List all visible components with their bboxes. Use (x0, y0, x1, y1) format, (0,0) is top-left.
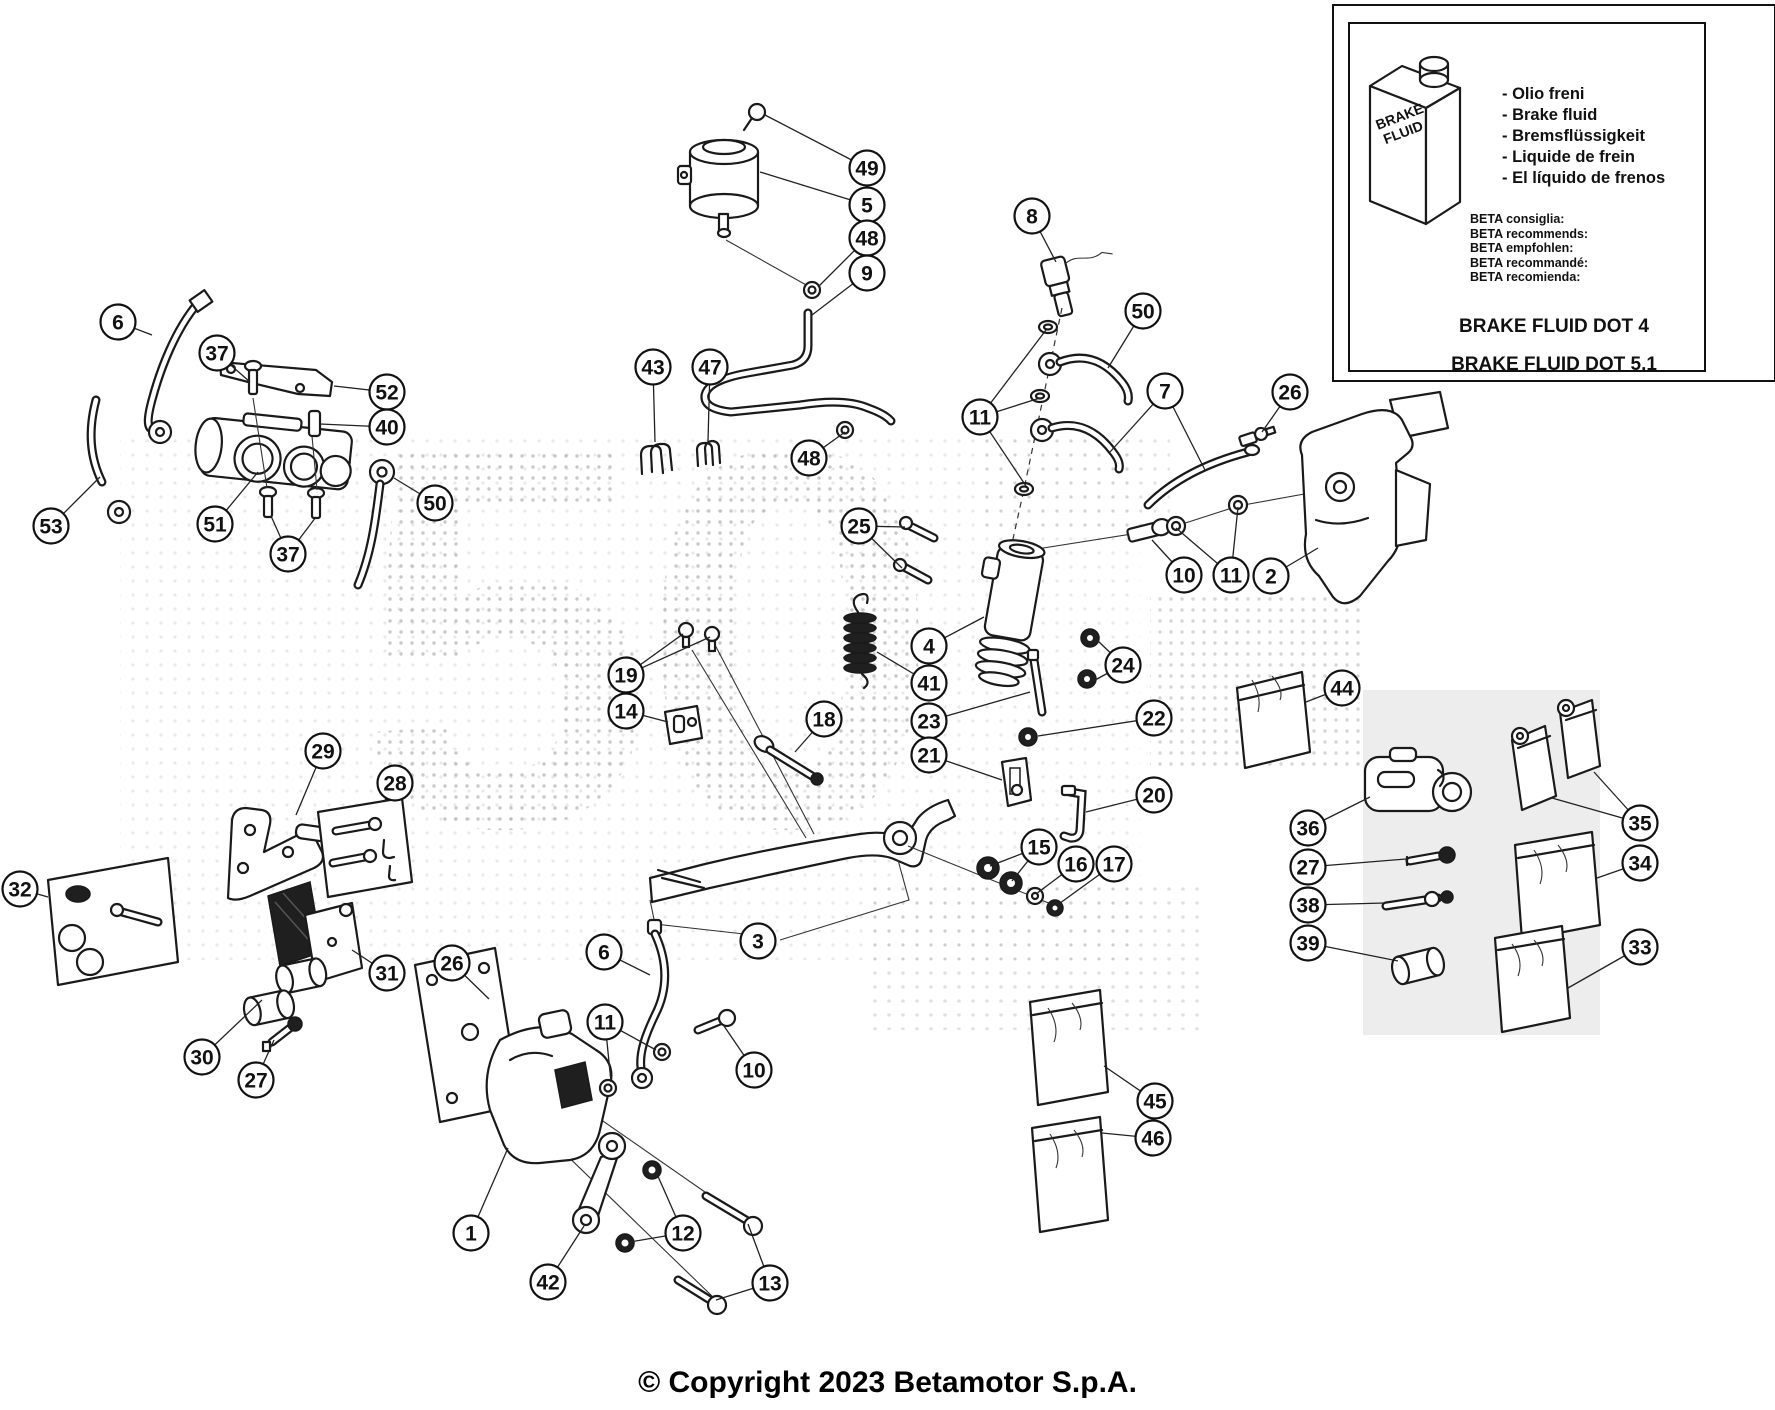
svg-text:2: 2 (1265, 566, 1277, 589)
svg-text:42: 42 (536, 1272, 559, 1295)
callout-33[interactable]: 33 (1623, 930, 1658, 965)
svg-text:39: 39 (1296, 933, 1319, 956)
svg-text:26: 26 (440, 953, 463, 976)
callout-8[interactable]: 8 (1015, 199, 1050, 234)
svg-text:27: 27 (244, 1070, 267, 1093)
callout-5[interactable]: 5 (850, 188, 885, 223)
part-screw-49 (744, 104, 765, 130)
part-bleeder-26-rear (1238, 424, 1276, 447)
callout-37[interactable]: 37 (200, 336, 235, 371)
callout-21[interactable]: 21 (912, 738, 947, 773)
svg-text:53: 53 (39, 516, 62, 539)
list-item: BETA recommends: (1470, 227, 1588, 242)
list-item: - Olio freni (1502, 84, 1665, 105)
callout-51[interactable]: 51 (198, 507, 233, 542)
svg-text:32: 32 (8, 879, 31, 902)
callout-50[interactable]: 50 (418, 486, 453, 521)
dot51-label: BRAKE FLUID DOT 5.1 (1334, 354, 1774, 376)
callout-6[interactable]: 6 (101, 305, 136, 340)
callout-29[interactable]: 29 (306, 734, 341, 769)
svg-text:6: 6 (598, 942, 610, 965)
callout-11[interactable]: 11 (1214, 558, 1249, 593)
brake-fluid-info-box: BRAKE FLUID - Olio freni- Brake fluid- B… (1332, 4, 1775, 382)
part-banjo-bolt-10-front (698, 1010, 735, 1030)
fluid-name-list: - Olio freni- Brake fluid- Bremsflüssigk… (1502, 84, 1665, 189)
callout-13[interactable]: 13 (753, 1266, 788, 1301)
callout-46[interactable]: 46 (1136, 1121, 1171, 1156)
callout-37[interactable]: 37 (271, 537, 306, 572)
callout-14[interactable]: 14 (609, 694, 644, 729)
svg-text:24: 24 (1111, 655, 1135, 678)
callout-27[interactable]: 27 (1291, 850, 1326, 885)
callout-15[interactable]: 15 (1022, 830, 1057, 865)
callout-43[interactable]: 43 (636, 350, 671, 385)
callout-48[interactable]: 48 (792, 441, 827, 476)
svg-text:11: 11 (1220, 565, 1243, 588)
callout-34[interactable]: 34 (1623, 846, 1658, 881)
svg-text:15: 15 (1027, 837, 1051, 860)
callout-1[interactable]: 1 (454, 1216, 489, 1251)
callout-18[interactable]: 18 (807, 702, 842, 737)
callout-16[interactable]: 16 (1059, 847, 1094, 882)
callout-47[interactable]: 47 (693, 350, 728, 385)
svg-text:18: 18 (812, 709, 836, 732)
callout-19[interactable]: 19 (609, 658, 644, 693)
svg-text:8: 8 (1026, 206, 1038, 229)
svg-text:36: 36 (1296, 818, 1319, 841)
svg-text:31: 31 (375, 963, 399, 986)
svg-text:45: 45 (1143, 1091, 1167, 1114)
part-seal-kit-32 (48, 858, 178, 985)
part-pistons-30 (242, 957, 329, 1027)
callout-24[interactable]: 24 (1106, 648, 1141, 683)
svg-text:21: 21 (917, 745, 941, 768)
svg-text:34: 34 (1628, 853, 1652, 876)
callout-2[interactable]: 2 (1254, 559, 1289, 594)
svg-text:25: 25 (847, 516, 871, 539)
part-bag-34 (1515, 832, 1600, 940)
svg-text:7: 7 (1159, 381, 1171, 404)
svg-text:17: 17 (1102, 854, 1125, 877)
part-lever-bracket-52 (220, 362, 332, 396)
svg-text:37: 37 (205, 343, 228, 366)
svg-text:10: 10 (1172, 565, 1195, 588)
callout-38[interactable]: 38 (1291, 888, 1326, 923)
callout-36[interactable]: 36 (1291, 811, 1326, 846)
callout-28[interactable]: 28 (378, 766, 413, 801)
svg-text:10: 10 (742, 1060, 765, 1083)
list-item: BETA recomienda: (1470, 270, 1588, 285)
svg-text:29: 29 (311, 741, 334, 764)
part-reservoir-5 (678, 140, 808, 286)
svg-text:4: 4 (923, 636, 935, 659)
svg-text:23: 23 (917, 711, 940, 734)
part-bag-44 (1237, 672, 1310, 768)
svg-text:43: 43 (641, 357, 664, 380)
parts-diagram-page: 50 (0, 0, 1775, 1410)
svg-text:6: 6 (112, 312, 124, 335)
part-front-brake-hose-6 (148, 290, 212, 443)
svg-text:5: 5 (861, 195, 873, 218)
svg-text:50: 50 (423, 493, 446, 516)
svg-text:22: 22 (1142, 708, 1165, 731)
svg-text:13: 13 (758, 1273, 781, 1296)
callout-49[interactable]: 49 (850, 151, 885, 186)
svg-text:48: 48 (797, 448, 821, 471)
svg-text:41: 41 (917, 673, 941, 696)
callout-9[interactable]: 9 (850, 256, 885, 291)
svg-text:12: 12 (671, 1223, 694, 1246)
svg-text:30: 30 (190, 1047, 213, 1070)
callout-12[interactable]: 12 (666, 1216, 701, 1251)
callout-10[interactable]: 10 (737, 1053, 772, 1088)
copyright: © Copyright 2023 Betamotor S.p.A. (0, 1366, 1775, 1400)
svg-text:33: 33 (1628, 937, 1651, 960)
callout-30[interactable]: 30 (185, 1040, 220, 1075)
callout-17[interactable]: 17 (1097, 847, 1132, 882)
svg-text:47: 47 (698, 357, 721, 380)
svg-text:37: 37 (276, 544, 299, 567)
beta-recommendation-list: BETA consiglia:BETA recommends:BETA empf… (1470, 212, 1588, 285)
svg-text:14: 14 (614, 701, 638, 724)
list-item: BETA empfohlen: (1470, 241, 1588, 256)
svg-text:50: 50 (1131, 301, 1154, 324)
svg-text:1: 1 (465, 1223, 477, 1246)
callout-26[interactable]: 26 (435, 946, 470, 981)
callout-11[interactable]: 11 (588, 1005, 623, 1040)
part-pin-40 (309, 411, 320, 436)
svg-text:11: 11 (969, 407, 992, 430)
callout-31[interactable]: 31 (370, 956, 405, 991)
list-item: BETA consiglia: (1470, 212, 1588, 227)
svg-text:48: 48 (855, 228, 879, 251)
svg-text:35: 35 (1628, 813, 1652, 836)
svg-text:26: 26 (1278, 382, 1301, 405)
callout-10[interactable]: 10 (1167, 558, 1202, 593)
callout-32[interactable]: 32 (3, 872, 38, 907)
callout-25[interactable]: 25 (842, 509, 877, 544)
part-guide-14 (665, 706, 702, 744)
callout-26[interactable]: 26 (1273, 375, 1308, 410)
callout-23[interactable]: 23 (912, 704, 947, 739)
callout-53[interactable]: 53 (34, 509, 69, 544)
callout-44[interactable]: 44 (1325, 671, 1360, 706)
callout-50[interactable]: 50 (1126, 294, 1161, 329)
callout-42[interactable]: 42 (531, 1265, 566, 1300)
svg-text:28: 28 (383, 773, 407, 796)
callout-22[interactable]: 22 (1137, 701, 1172, 736)
callout-40[interactable]: 40 (370, 410, 405, 445)
part-clevis-21 (1002, 758, 1031, 806)
svg-text:27: 27 (1296, 857, 1319, 880)
svg-text:11: 11 (594, 1012, 617, 1035)
svg-text:9: 9 (861, 263, 873, 286)
part-bag-45 (1030, 990, 1108, 1105)
svg-text:20: 20 (1142, 785, 1165, 808)
callout-27[interactable]: 27 (239, 1063, 274, 1098)
callout-7[interactable]: 7 (1148, 374, 1183, 409)
part-bag-46 (1032, 1117, 1108, 1232)
callout-41[interactable]: 41 (912, 666, 947, 701)
part-nut-22 (1019, 728, 1037, 746)
list-item: - El líquido de frenos (1502, 168, 1665, 189)
callout-4[interactable]: 4 (912, 629, 947, 664)
callout-6[interactable]: 6 (587, 935, 622, 970)
callout-3[interactable]: 3 (741, 924, 776, 959)
list-item: - Brake fluid (1502, 105, 1665, 126)
svg-text:3: 3 (752, 931, 764, 954)
part-hose-50-mid (1039, 353, 1128, 401)
svg-text:44: 44 (1330, 678, 1354, 701)
callout-11[interactable]: 11 (963, 400, 998, 435)
svg-text:16: 16 (1064, 854, 1087, 877)
svg-text:40: 40 (375, 417, 398, 440)
callout-52[interactable]: 52 (370, 375, 405, 410)
svg-text:52: 52 (375, 382, 398, 405)
callout-45[interactable]: 45 (1138, 1084, 1173, 1119)
callout-35[interactable]: 35 (1623, 806, 1658, 841)
svg-text:51: 51 (203, 514, 227, 537)
callout-39[interactable]: 39 (1291, 926, 1326, 961)
svg-text:46: 46 (1141, 1128, 1164, 1151)
part-bag-33 (1495, 926, 1570, 1032)
dot4-label: BRAKE FLUID DOT 4 (1334, 316, 1774, 338)
part-bolts-13 (678, 1196, 762, 1314)
list-item: - Bremsflüssigkeit (1502, 126, 1665, 147)
callout-48[interactable]: 48 (850, 221, 885, 256)
svg-text:19: 19 (614, 665, 637, 688)
svg-text:38: 38 (1296, 895, 1320, 918)
callout-20[interactable]: 20 (1137, 778, 1172, 813)
list-item: - Liquide de frein (1502, 147, 1665, 168)
part-pin-kit-28 (318, 798, 412, 897)
list-item: BETA recommandé: (1470, 256, 1588, 271)
svg-text:49: 49 (855, 158, 878, 181)
